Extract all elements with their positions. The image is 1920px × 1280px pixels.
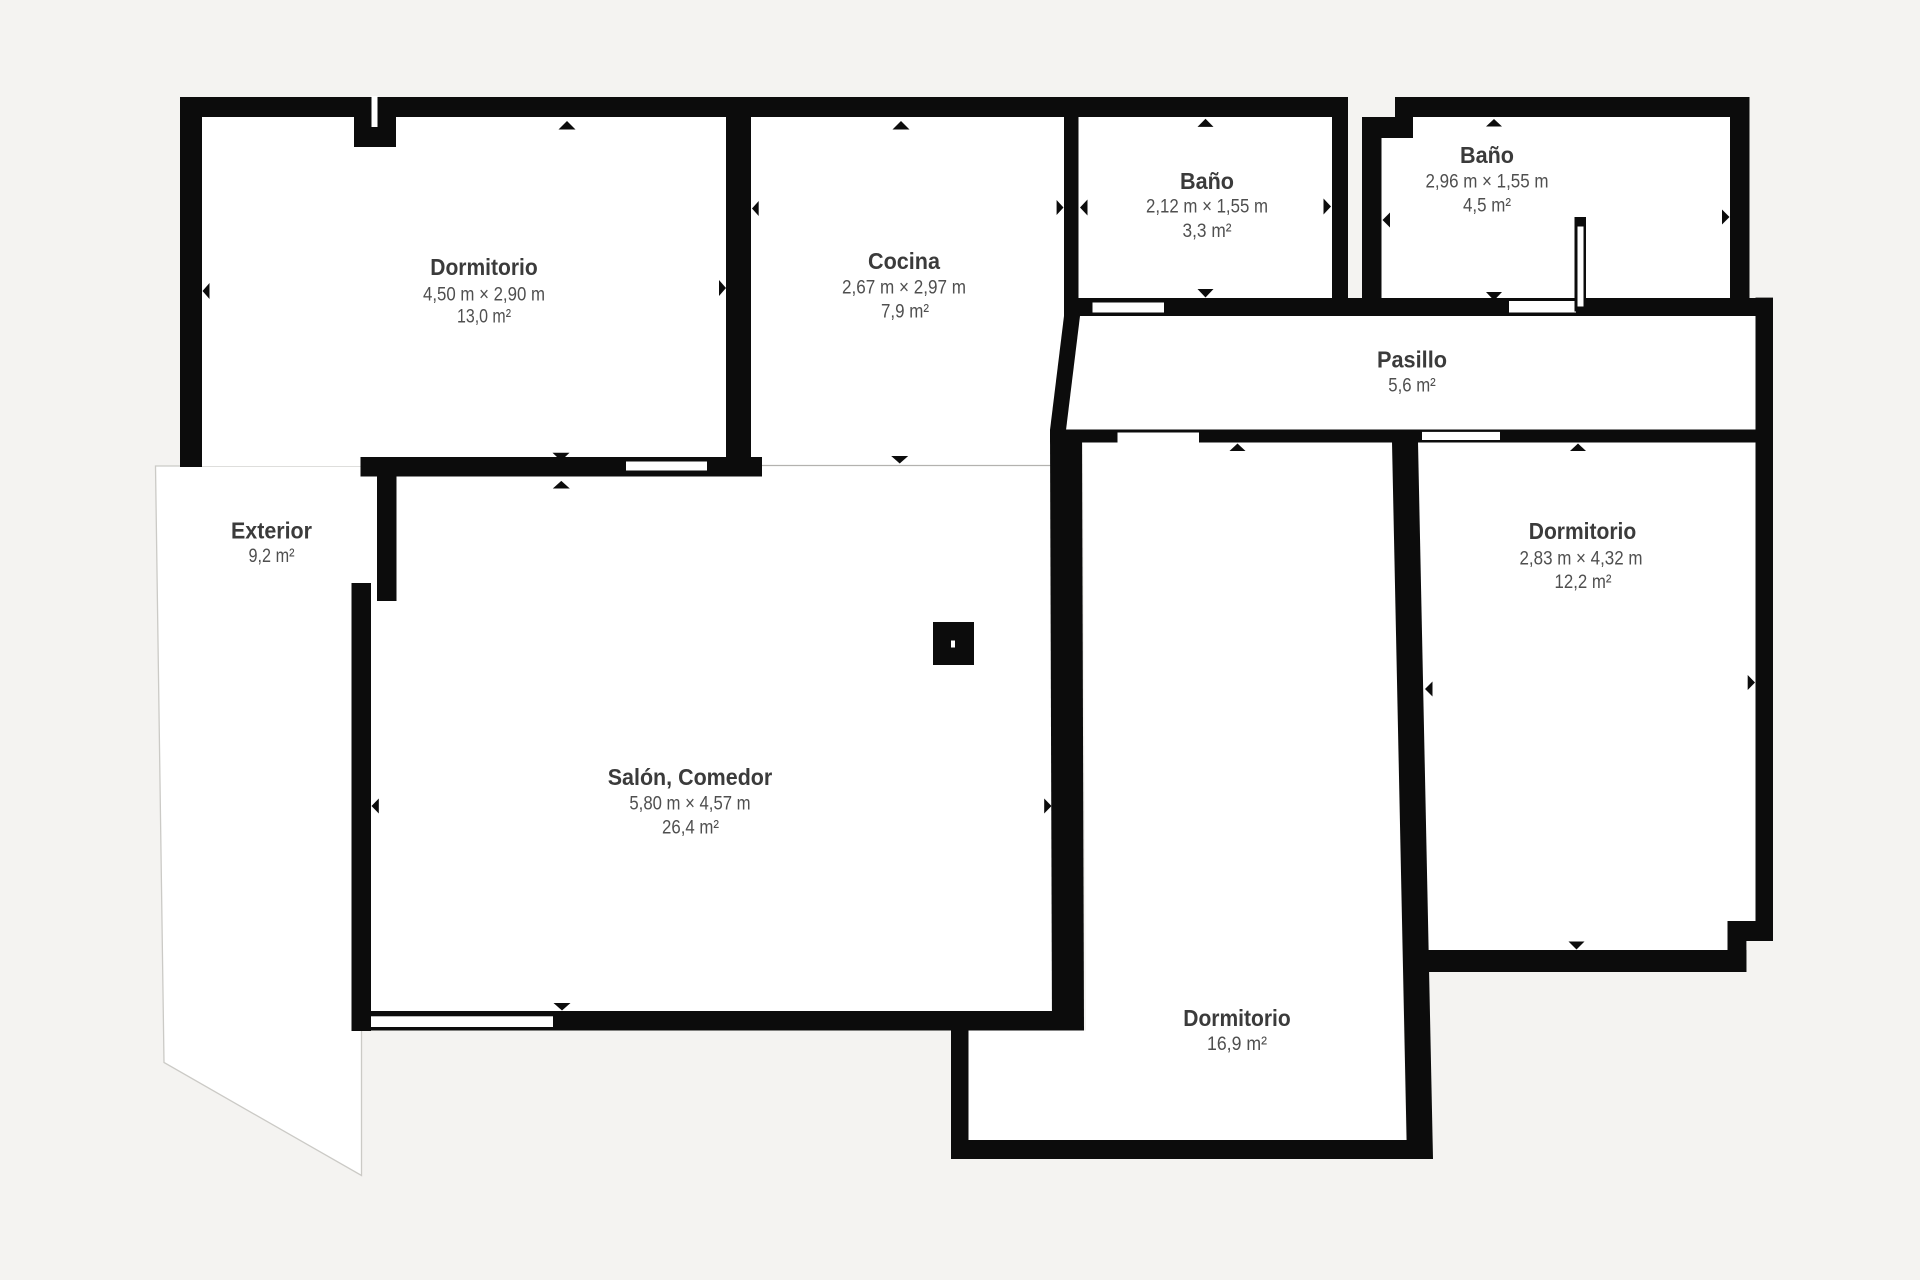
- svg-text:Dormitorio: Dormitorio: [1529, 518, 1637, 544]
- svg-text:Salón, Comedor: Salón, Comedor: [608, 764, 773, 790]
- svg-text:4,50 m × 2,90 m: 4,50 m × 2,90 m: [423, 284, 545, 305]
- svg-text:12,2 m²: 12,2 m²: [1555, 572, 1612, 593]
- svg-text:Baño: Baño: [1460, 142, 1514, 168]
- svg-text:Baño: Baño: [1180, 168, 1234, 194]
- svg-text:4,5 m²: 4,5 m²: [1463, 196, 1511, 217]
- svg-text:5,80 m × 4,57 m: 5,80 m × 4,57 m: [629, 794, 750, 815]
- svg-text:13,0 m²: 13,0 m²: [457, 307, 511, 328]
- svg-text:16,9 m²: 16,9 m²: [1207, 1034, 1267, 1055]
- svg-text:9,2 m²: 9,2 m²: [249, 546, 295, 567]
- svg-text:Exterior: Exterior: [231, 518, 312, 544]
- svg-text:5,6 m²: 5,6 m²: [1388, 375, 1436, 396]
- svg-text:Dormitorio: Dormitorio: [430, 254, 538, 280]
- svg-text:Pasillo: Pasillo: [1377, 347, 1447, 373]
- svg-text:2,12 m × 1,55 m: 2,12 m × 1,55 m: [1146, 197, 1268, 218]
- svg-text:7,9 m²: 7,9 m²: [881, 302, 929, 323]
- svg-text:2,83 m × 4,32 m: 2,83 m × 4,32 m: [1520, 549, 1643, 570]
- svg-text:Cocina: Cocina: [868, 248, 941, 274]
- svg-text:2,67 m × 2,97 m: 2,67 m × 2,97 m: [842, 278, 966, 299]
- svg-text:26,4 m²: 26,4 m²: [662, 818, 719, 839]
- svg-text:Dormitorio: Dormitorio: [1183, 1005, 1291, 1031]
- svg-text:3,3 m²: 3,3 m²: [1183, 221, 1232, 242]
- svg-text:2,96 m × 1,55 m: 2,96 m × 1,55 m: [1426, 172, 1549, 193]
